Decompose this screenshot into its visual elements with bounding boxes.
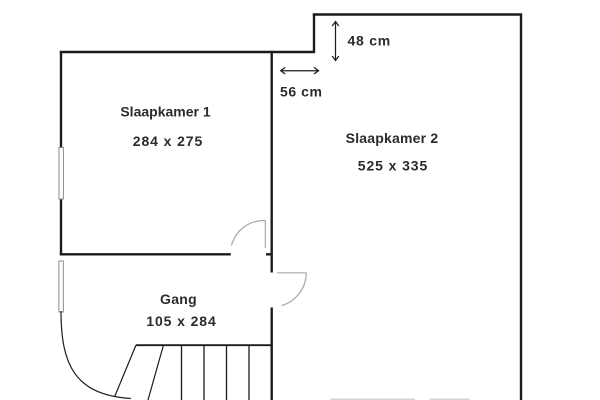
svg-text:Slaapkamer 1: Slaapkamer 1 — [120, 104, 210, 120]
svg-text:105 x 284: 105 x 284 — [146, 313, 216, 329]
svg-text:Slaapkamer 2: Slaapkamer 2 — [346, 130, 439, 146]
svg-text:Gang: Gang — [160, 291, 197, 307]
svg-text:284 x 275: 284 x 275 — [133, 133, 203, 149]
svg-text:48 cm: 48 cm — [348, 33, 391, 49]
svg-text:525 x 335: 525 x 335 — [358, 158, 428, 174]
svg-text:56 cm: 56 cm — [280, 83, 322, 99]
